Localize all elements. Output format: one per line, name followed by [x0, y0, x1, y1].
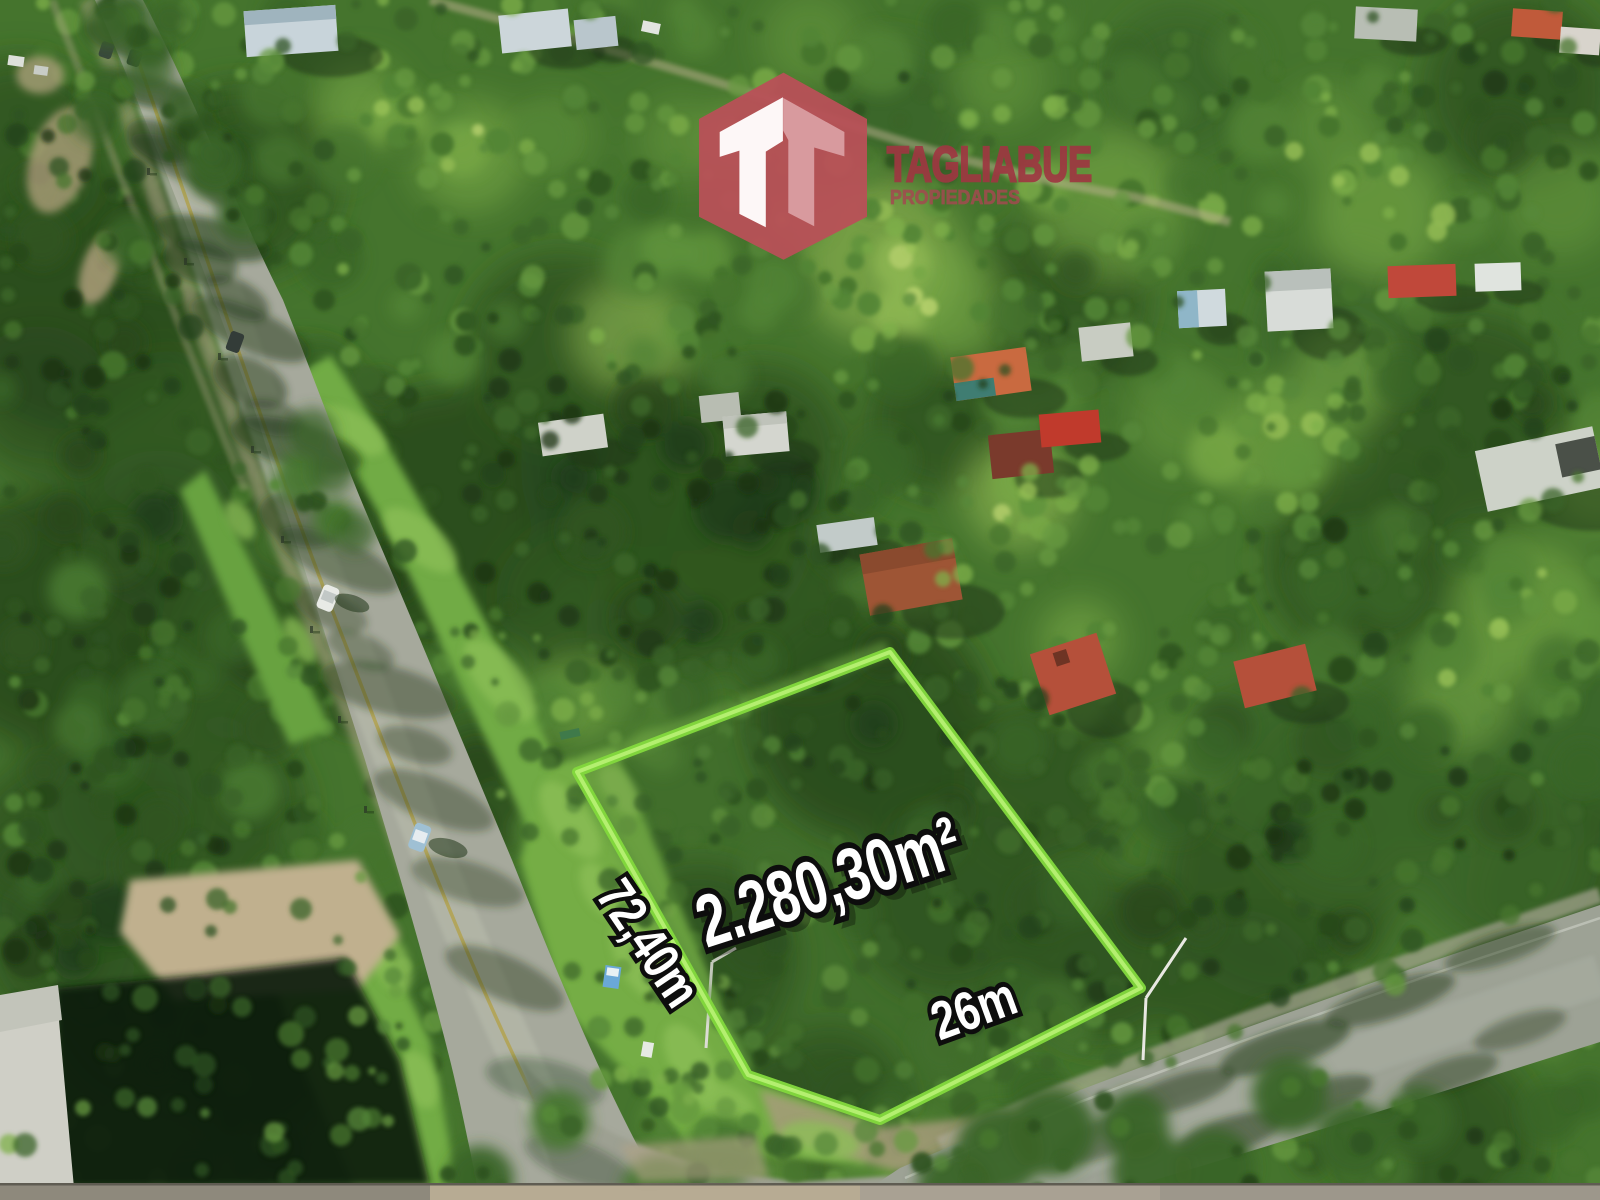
- svg-text:PROPIEDADES: PROPIEDADES: [890, 187, 1020, 209]
- svg-text:TAGLIABUE: TAGLIABUE: [887, 138, 1092, 192]
